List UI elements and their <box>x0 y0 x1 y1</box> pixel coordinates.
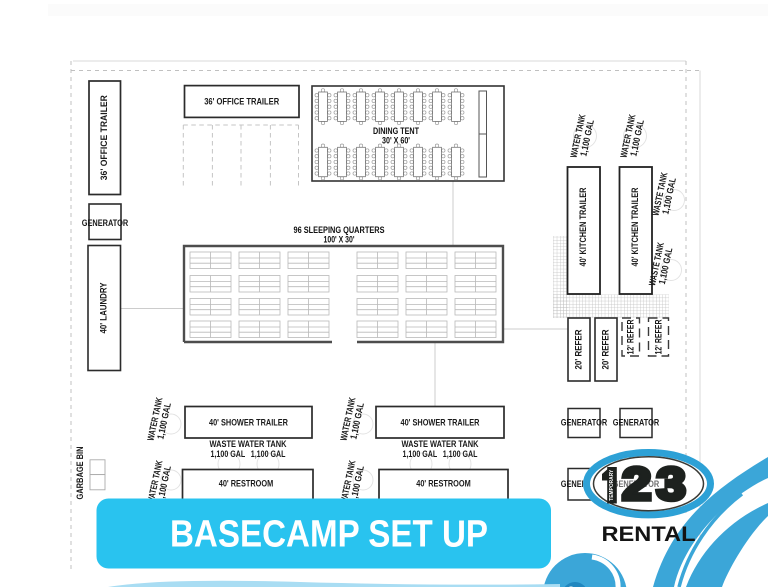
svg-text:TEMPORARY: TEMPORARY <box>609 469 615 500</box>
svg-text:GENERATOR: GENERATOR <box>561 418 608 429</box>
svg-text:40' KITCHEN TRAILER: 40' KITCHEN TRAILER <box>630 187 641 266</box>
svg-text:12' REFER: 12' REFER <box>626 319 636 354</box>
svg-text:40' RESTROOM: 40' RESTROOM <box>416 479 471 490</box>
svg-text:40' SHOWER TRAILER: 40' SHOWER TRAILER <box>401 418 480 429</box>
svg-text:GENERATOR: GENERATOR <box>82 218 129 229</box>
svg-text:36' OFFICE TRAILER: 36' OFFICE TRAILER <box>99 95 110 180</box>
svg-text:40' LAUNDRY: 40' LAUNDRY <box>99 282 110 334</box>
svg-text:23: 23 <box>622 460 691 510</box>
svg-text:BASECAMP SET UP: BASECAMP SET UP <box>170 514 488 556</box>
svg-text:40' RESTROOM: 40' RESTROOM <box>219 479 274 490</box>
svg-text:36' OFFICE TRAILER: 36' OFFICE TRAILER <box>204 97 279 108</box>
svg-text:20' REFER: 20' REFER <box>574 329 585 369</box>
svg-text:1,100 GAL 1,100 GAL: 1,100 GAL 1,100 GAL <box>211 449 286 460</box>
svg-text:GARBAGE BIN: GARBAGE BIN <box>75 447 85 500</box>
svg-text:12' REFER: 12' REFER <box>654 319 664 354</box>
svg-text:40' SHOWER TRAILER: 40' SHOWER TRAILER <box>209 418 288 429</box>
svg-text:30' X 60': 30' X 60' <box>382 136 410 146</box>
svg-text:20' REFER: 20' REFER <box>601 329 612 369</box>
svg-text:GENERATOR: GENERATOR <box>613 418 660 429</box>
svg-text:40' KITCHEN TRAILER: 40' KITCHEN TRAILER <box>578 187 589 266</box>
svg-text:1,100 GAL 1,100 GAL: 1,100 GAL 1,100 GAL <box>403 449 478 460</box>
svg-text:100' X 30': 100' X 30' <box>324 235 355 245</box>
svg-text:RENTAL: RENTAL <box>602 522 696 546</box>
